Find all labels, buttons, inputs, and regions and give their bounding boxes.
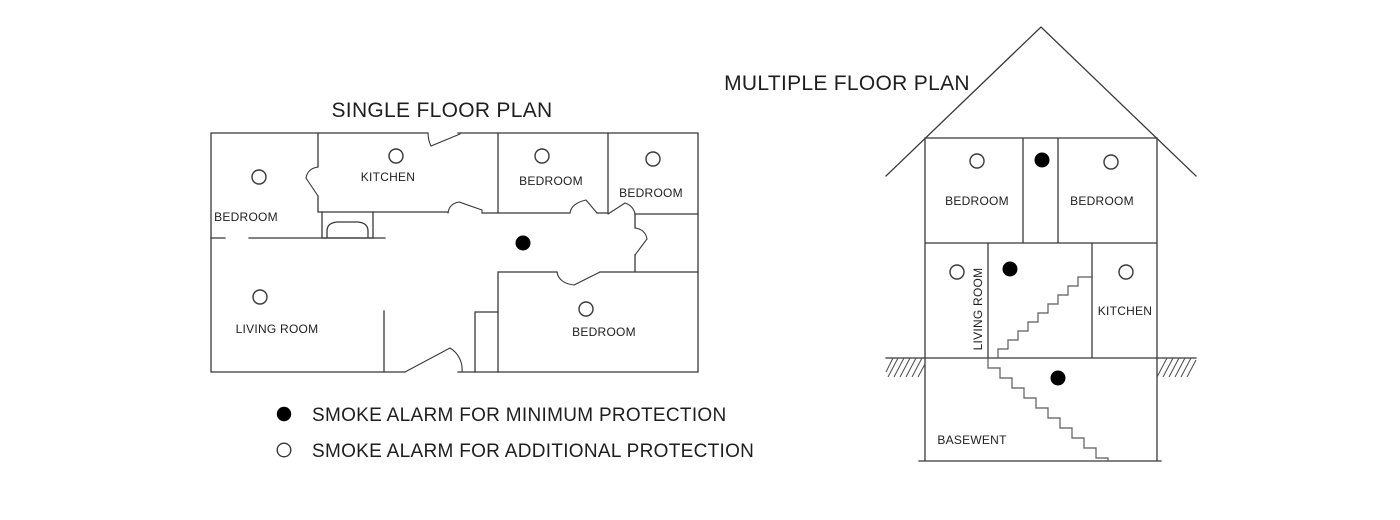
smoke-alarm-additional-kitchen <box>1119 265 1133 279</box>
room-label-bedroom: BEDROOM <box>214 210 278 224</box>
staircase-upper <box>998 277 1092 358</box>
multiple-floor-walls <box>886 138 1196 461</box>
legend-additional-protection-label: SMOKE ALARM FOR ADDITIONAL PROTECTION <box>312 441 754 462</box>
smoke-alarm-additional-bedroom-top-left <box>252 170 266 184</box>
smoke-alarm-additional-bedroom-bottom <box>579 302 593 316</box>
room-label-kitchen: KITCHEN <box>1098 304 1152 318</box>
smoke-alarm-additional-bedroom-right <box>1104 155 1118 169</box>
smoke-alarm-additional-living-room <box>253 290 267 304</box>
room-label-bedroom: BEDROOM <box>572 325 636 339</box>
smoke-alarm-minimum-stair-landing <box>1003 262 1018 277</box>
room-label-kitchen: KITCHEN <box>361 170 415 184</box>
smoke-alarm-minimum-basement <box>1051 371 1066 386</box>
single-floor-fixtures <box>322 212 498 372</box>
floor-plan-diagram: SINGLE FLOOR PLAN BEDROOMKITCHENBEDROOMB… <box>0 0 1400 520</box>
room-label-bedroom: BEDROOM <box>519 174 583 188</box>
legend-minimum-protection-label: SMOKE ALARM FOR MINIMUM PROTECTION <box>312 405 727 426</box>
multiple-floor-room-labels: BEDROOMBEDROOMLIVING ROOMKITCHENBASEWENT <box>937 194 1152 447</box>
ground-hatching-left <box>886 358 925 377</box>
multiple-floor-plan-title: MULTIPLE FLOOR PLAN <box>724 72 970 95</box>
legend-additional-protection-symbol <box>277 443 291 457</box>
smoke-alarm-minimum-hallway <box>516 236 531 251</box>
single-floor-plan-title: SINGLE FLOOR PLAN <box>332 99 553 122</box>
room-label-bedroom: BEDROOM <box>945 194 1009 208</box>
smoke-alarm-additional-bedroom-top-right <box>646 152 660 166</box>
multiple-floor-plan: MULTIPLE FLOOR PLAN BEDROOMBEDROOMLIVING… <box>724 27 1196 461</box>
room-label-living-room: LIVING ROOM <box>971 268 985 351</box>
smoke-alarm-additional-living-room <box>950 265 964 279</box>
room-label-basewent: BASEWENT <box>937 433 1007 447</box>
smoke-alarm-additional-kitchen <box>389 149 403 163</box>
legend-minimum-protection-symbol <box>277 407 291 421</box>
smoke-alarm-additional-bedroom-top-middle <box>535 149 549 163</box>
room-label-bedroom: BEDROOM <box>1070 194 1134 208</box>
room-label-bedroom: BEDROOM <box>619 186 683 200</box>
room-label-living-room: LIVING ROOM <box>236 322 319 336</box>
ground-hatching-right <box>1157 358 1196 377</box>
diagram-svg: SINGLE FLOOR PLAN BEDROOMKITCHENBEDROOMB… <box>0 0 1400 520</box>
smoke-alarm-additional-bedroom-left <box>970 154 984 168</box>
single-floor-alarm-markers <box>252 149 660 316</box>
smoke-alarm-minimum-upper-hallway <box>1035 153 1050 168</box>
legend: SMOKE ALARM FOR MINIMUM PROTECTION SMOKE… <box>277 405 754 462</box>
single-floor-room-labels: BEDROOMKITCHENBEDROOMBEDROOMLIVING ROOMB… <box>214 170 683 339</box>
single-floor-plan: SINGLE FLOOR PLAN BEDROOMKITCHENBEDROOMB… <box>211 99 698 372</box>
